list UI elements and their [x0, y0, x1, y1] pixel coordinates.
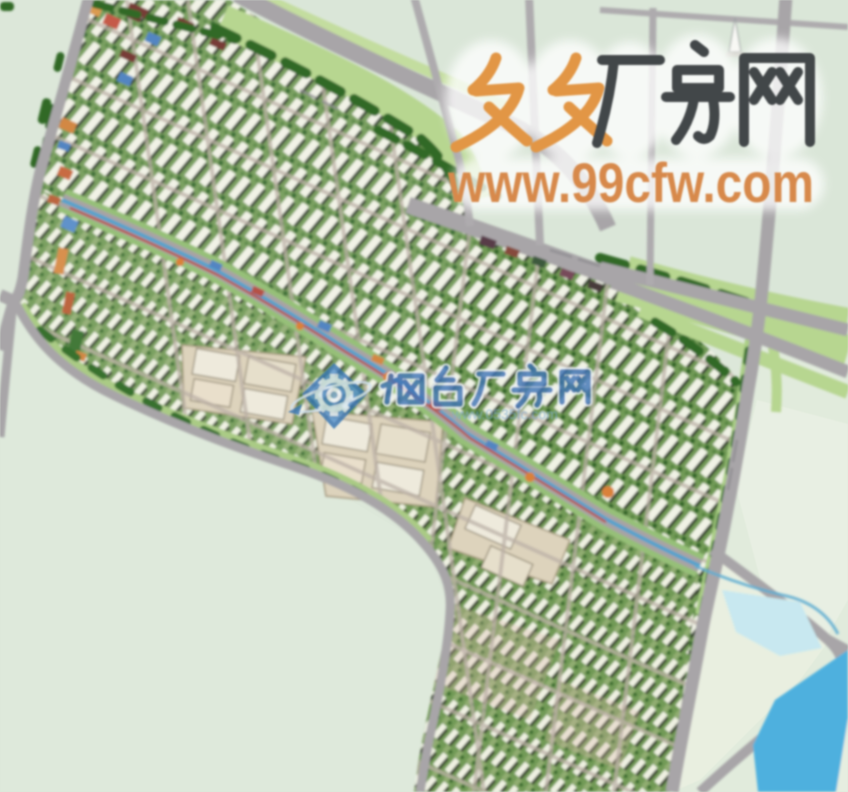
svg-text:www.0535fc.com: www.0535fc.com — [451, 406, 558, 422]
svg-text:www.99cfw.com: www.99cfw.com — [447, 151, 814, 214]
